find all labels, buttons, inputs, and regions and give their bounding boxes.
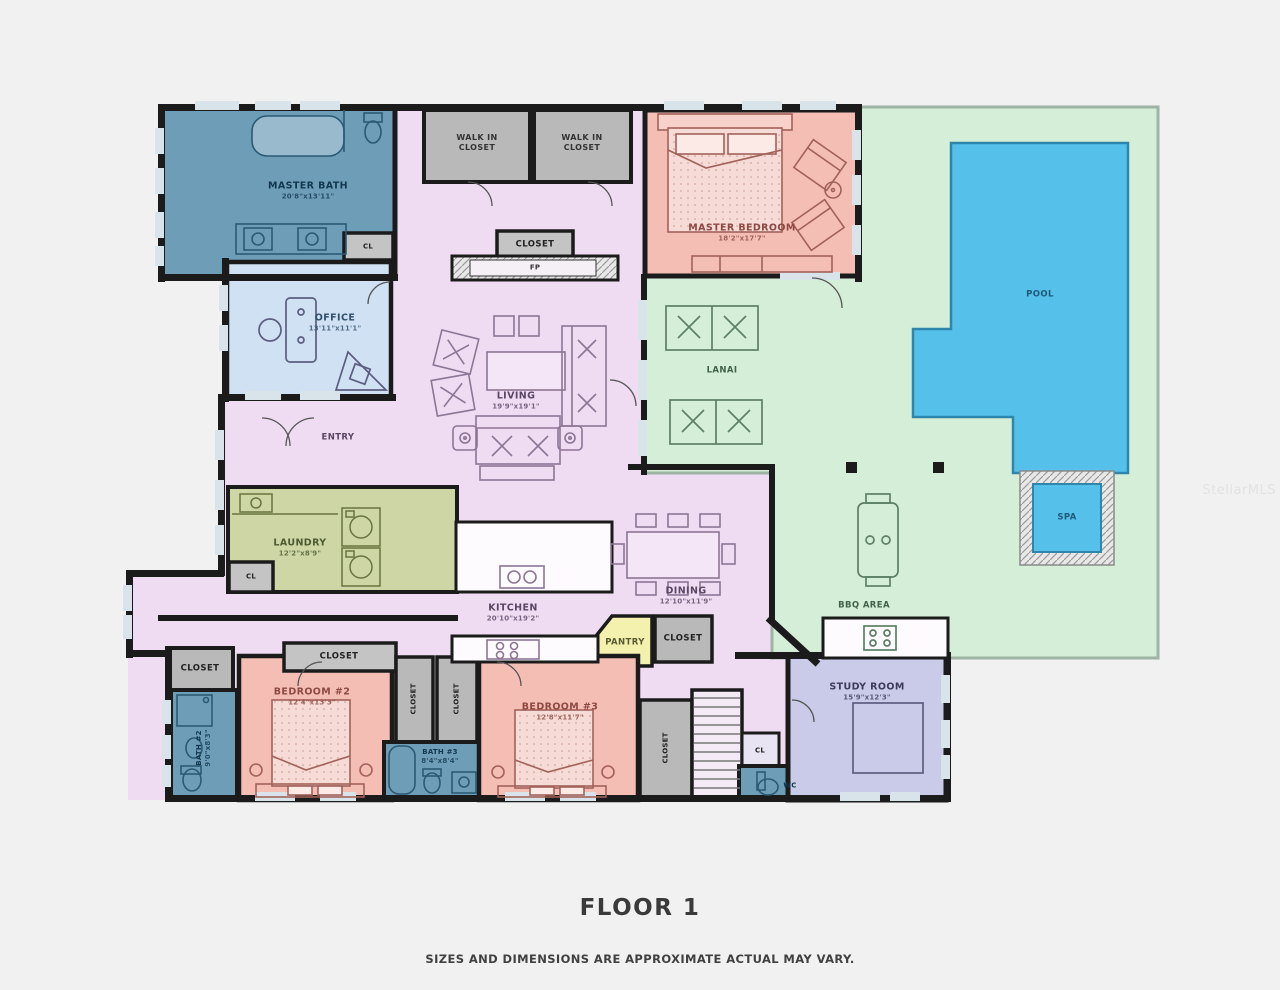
floor-plan-canvas: MASTER BATH 20'8"x13'11" WALK IN CLOSET … — [0, 0, 1280, 990]
disclaimer-text: SIZES AND DIMENSIONS ARE APPROXIMATE ACT… — [425, 952, 854, 966]
floor-plan-graphics — [0, 0, 1280, 990]
floor-title: FLOOR 1 — [580, 895, 701, 921]
watermark: StellarMLS — [1202, 483, 1276, 498]
